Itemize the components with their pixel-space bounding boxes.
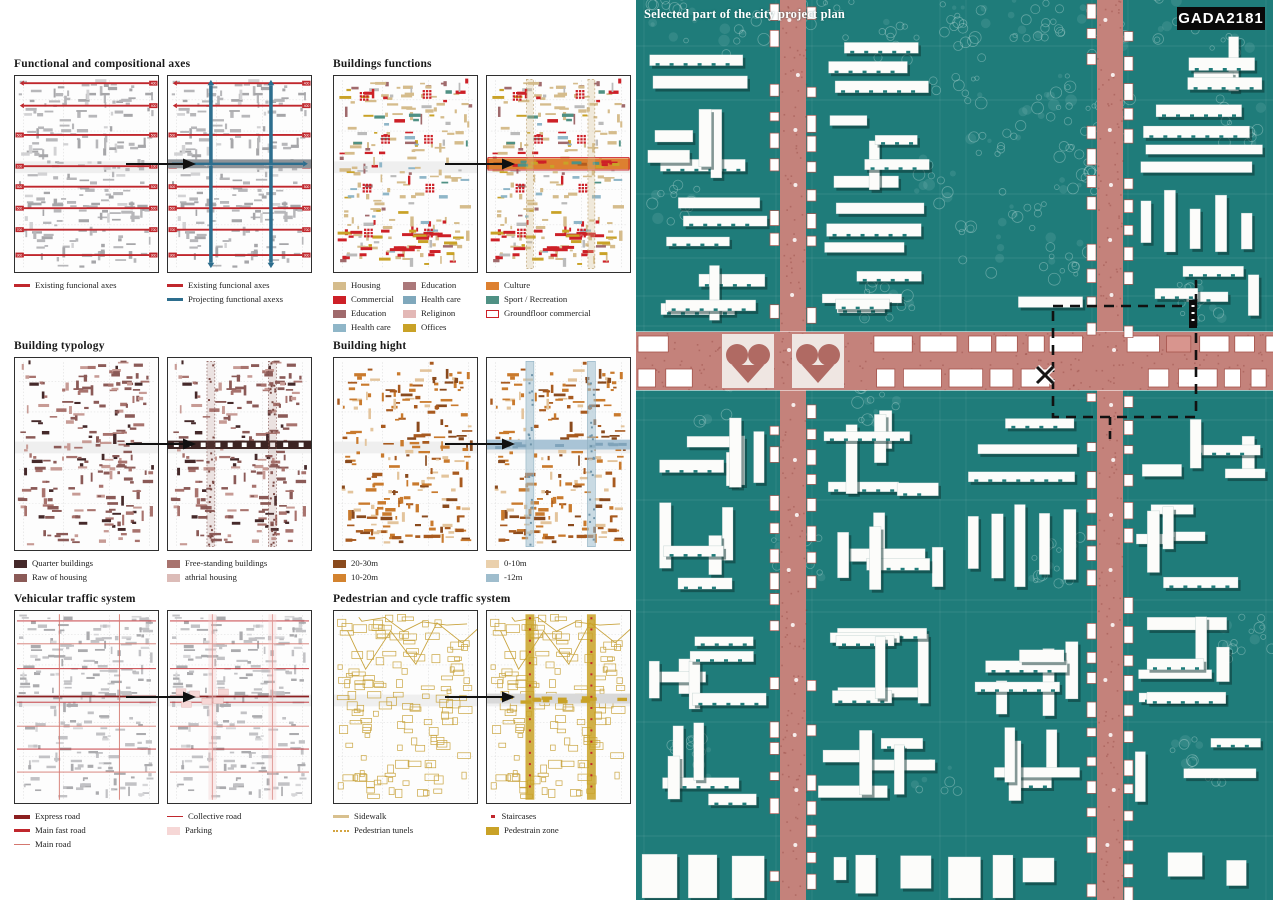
- minimap-functional-axes-proposed: 4004005005001001005005005005007007009009…: [167, 75, 312, 273]
- legend-column: CultureSport / RecreationGroundfloor com…: [486, 281, 591, 323]
- legend-swatch-rect: [333, 296, 346, 304]
- legend-label: Existing funcional axes: [188, 281, 270, 290]
- minimap-building-functions-existing: [333, 75, 478, 273]
- legend-swatch-rect: [333, 560, 346, 568]
- legend-item: Sidewalk: [333, 812, 413, 821]
- legend-swatch-rect: [167, 827, 180, 835]
- legend-swatch-rect: [403, 324, 416, 332]
- legend-item: -12m: [486, 573, 527, 582]
- legend-item: Sport / Recreation: [486, 295, 591, 304]
- legend-swatch-rect: [486, 574, 499, 582]
- section-building-functions: Buildings functionsHousingCommercialEduc…: [333, 58, 633, 341]
- minimap-building-functions-proposed: [486, 75, 631, 273]
- axis-distance-tag: 400: [304, 104, 310, 108]
- legend-swatch-rect: [167, 560, 180, 568]
- legend-swatch-line: [14, 829, 30, 832]
- legend-item: Parking: [167, 826, 241, 835]
- legend-item: Offices: [403, 323, 461, 332]
- project-code-badge: GADA2181: [1177, 7, 1265, 30]
- legend-item: Commercial: [333, 295, 394, 304]
- axis-distance-tag: 500: [304, 185, 310, 189]
- legend-swatch-rect: [14, 574, 27, 582]
- legend-label: Free-standing buildings: [185, 559, 267, 568]
- legend-column: Existing funcional axesProjecting functi…: [167, 281, 283, 309]
- legend-label: -12m: [504, 573, 522, 582]
- legend-swatch-dot: [491, 815, 495, 819]
- legend-label: Religinon: [421, 309, 455, 318]
- legend-column: Collective roadParking: [167, 812, 241, 840]
- legend-label: Projecting functional axexs: [188, 295, 283, 304]
- legend-column: 0-10m-12m: [486, 559, 527, 587]
- section-title: Pedestrian and cycle traffic system: [333, 593, 633, 605]
- axis-distance-tag: 500: [170, 133, 176, 137]
- axis-distance-tag: 500: [151, 207, 157, 211]
- section-building-typology: Building typologyQuarter buildingsRaw of…: [14, 340, 314, 619]
- section-title: Buildings functions: [333, 58, 633, 70]
- legend-item: Health care: [403, 295, 461, 304]
- legend-label: Main road: [35, 840, 71, 849]
- minimap-pedestrian-cycle-existing: [333, 610, 478, 804]
- legend-swatch-rect: [403, 296, 416, 304]
- axis-distance-tag: 700: [304, 228, 310, 232]
- legend-swatch-rect: [333, 324, 346, 332]
- section-functional-axes: Functional and compositional axes4004005…: [14, 58, 314, 341]
- legend-swatch-rect: [486, 560, 499, 568]
- legend-label: Collective road: [188, 812, 241, 821]
- legend-item: Culture: [486, 281, 591, 290]
- section-title: Building typology: [14, 340, 314, 352]
- legend-swatch-rect: [14, 560, 27, 568]
- legend-swatch-rect: [403, 310, 416, 318]
- legend-label: Housing: [351, 281, 380, 290]
- legend-item: Free-standing buildings: [167, 559, 267, 568]
- legend-item: 20-30m: [333, 559, 378, 568]
- legend-swatch-rect: [333, 282, 346, 290]
- axis-distance-tag: 100: [17, 165, 23, 169]
- legend-label: Quarter buildings: [32, 559, 93, 568]
- axis-distance-tag: 500: [304, 207, 310, 211]
- legend-swatch-rect: [403, 282, 416, 290]
- legend-item: athrial housing: [167, 573, 267, 582]
- analysis-diagrams-panel: Functional and compositional axes4004005…: [0, 0, 636, 900]
- legend-column: StaircasesPedestrain zone: [486, 812, 559, 840]
- map-canvas: [636, 0, 1273, 900]
- legend-label: Culture: [504, 281, 530, 290]
- legend-column: EducationHealth careReliginonOffices: [403, 281, 461, 337]
- axis-distance-tag: 400: [151, 104, 157, 108]
- legend-item: Groundfloor commercial: [486, 309, 591, 318]
- legend-label: Main fast road: [35, 826, 86, 835]
- legend-item: Existing funcional axes: [167, 281, 283, 290]
- legend-label: Existing funcional axes: [35, 281, 117, 290]
- minimap-building-typology-proposed: [167, 357, 312, 551]
- legend-pedestrian-cycle: SidewalkPedestrian tunelsStaircasesPedes…: [333, 812, 633, 872]
- axis-distance-tag: 500: [151, 133, 157, 137]
- axis-distance-tag: 500: [17, 185, 23, 189]
- legend-swatch-line: [167, 284, 183, 287]
- city-project-map: Selected part of the city project plan G…: [636, 0, 1273, 900]
- legend-item: 0-10m: [486, 559, 527, 568]
- legend-item: Existing funcional axes: [14, 281, 117, 290]
- legend-swatch-line: [167, 298, 183, 301]
- axis-distance-tag: 100: [151, 165, 157, 169]
- legend-swatch-rect: [333, 310, 346, 318]
- section-pedestrian-cycle: Pedestrian and cycle traffic systemSidew…: [333, 593, 633, 872]
- legend-label: Staircases: [502, 812, 537, 821]
- axis-distance-tag: 700: [17, 228, 23, 232]
- legend-item: Main fast road: [14, 826, 86, 835]
- minimap-vehicular-traffic-proposed: [167, 610, 312, 804]
- legend-item: Pedestrain zone: [486, 826, 559, 835]
- legend-swatch-rect: [167, 574, 180, 582]
- legend-label: Education: [351, 309, 386, 318]
- legend-item: Collective road: [167, 812, 241, 821]
- minimap-pedestrian-cycle-proposed: [486, 610, 631, 804]
- section-title: Vehicular traffic system: [14, 593, 314, 605]
- legend-label: 0-10m: [504, 559, 527, 568]
- legend-swatch-line: [333, 815, 349, 818]
- legend-label: Raw of housing: [32, 573, 87, 582]
- axis-distance-tag: 500: [17, 133, 23, 137]
- legend-label: Sport / Recreation: [504, 295, 567, 304]
- legend-label: Health care: [351, 323, 391, 332]
- legend-label: Offices: [421, 323, 446, 332]
- legend-item: Staircases: [486, 812, 559, 821]
- legend-building-functions: HousingCommercialEducationHealth careEdu…: [333, 281, 633, 341]
- legend-swatch-line-thin: [14, 844, 30, 846]
- legend-functional-axes: Existing funcional axesExisting funciona…: [14, 281, 314, 341]
- legend-item: Quarter buildings: [14, 559, 93, 568]
- legend-swatch-outline: [486, 310, 499, 318]
- minimap-building-hight-proposed: [486, 357, 631, 551]
- axis-distance-tag: 500: [170, 207, 176, 211]
- legend-label: Pedestrain zone: [504, 826, 559, 835]
- legend-column: SidewalkPedestrian tunels: [333, 812, 413, 840]
- axis-distance-tag: 700: [170, 228, 176, 232]
- legend-item: Religinon: [403, 309, 461, 318]
- legend-column: 20-30m10-20m: [333, 559, 378, 587]
- legend-item: Projecting functional axexs: [167, 295, 283, 304]
- legend-swatch-line-thick: [14, 815, 30, 819]
- minimap-building-typology-existing: [14, 357, 159, 551]
- legend-item: Health care: [333, 323, 394, 332]
- section-title: Building hight: [333, 340, 633, 352]
- legend-label: Commercial: [351, 295, 394, 304]
- axis-distance-tag: 500: [170, 185, 176, 189]
- legend-label: Parking: [185, 826, 212, 835]
- legend-label: 10-20m: [351, 573, 378, 582]
- axis-distance-tag: 900: [151, 253, 157, 257]
- axis-distance-tag: 500: [304, 133, 310, 137]
- legend-item: Express road: [14, 812, 86, 821]
- legend-item: Main road: [14, 840, 86, 849]
- legend-label: 20-30m: [351, 559, 378, 568]
- legend-column: Quarter buildingsRaw of housing: [14, 559, 93, 587]
- minimap-building-hight-existing: [333, 357, 478, 551]
- axis-distance-tag: 900: [17, 253, 23, 257]
- section-vehicular-traffic: Vehicular traffic systemExpress roadMain…: [14, 593, 314, 872]
- legend-item: Education: [403, 281, 461, 290]
- axis-distance-tag: 500: [17, 207, 23, 211]
- section-title: Functional and compositional axes: [14, 58, 314, 70]
- legend-item: Education: [333, 309, 394, 318]
- legend-label: Education: [421, 281, 456, 290]
- axis-distance-tag: 900: [170, 253, 176, 257]
- legend-label: athrial housing: [185, 573, 237, 582]
- legend-swatch-line: [14, 284, 30, 287]
- minimap-functional-axes-existing: 4004005005001001005005005005007007009009…: [14, 75, 159, 273]
- legend-column: HousingCommercialEducationHealth care: [333, 281, 394, 337]
- legend-item: Pedestrian tunels: [333, 826, 413, 835]
- legend-swatch-rect: [486, 827, 499, 835]
- legend-item: Raw of housing: [14, 573, 93, 582]
- minimap-vehicular-traffic-existing: [14, 610, 159, 804]
- legend-label: Groundfloor commercial: [504, 309, 591, 318]
- axis-distance-tag: 400: [151, 82, 157, 86]
- legend-label: Health care: [421, 295, 461, 304]
- legend-column: Existing funcional axes: [14, 281, 117, 295]
- axis-distance-tag: 700: [151, 228, 157, 232]
- legend-label: Pedestrian tunels: [354, 826, 413, 835]
- axis-distance-tag: 500: [151, 185, 157, 189]
- axis-distance-tag: 400: [304, 82, 310, 86]
- legend-label: Sidewalk: [354, 812, 386, 821]
- legend-vehicular-traffic: Express roadMain fast roadMain roadColle…: [14, 812, 314, 872]
- legend-swatch-rect: [486, 296, 499, 304]
- section-building-hight: Building hight20-30m10-20m0-10m-12m: [333, 340, 633, 619]
- legend-item: 10-20m: [333, 573, 378, 582]
- legend-swatch-line-dotted: [333, 830, 349, 832]
- legend-column: Express roadMain fast roadMain road: [14, 812, 86, 854]
- map-scale-tag: [1189, 300, 1197, 328]
- legend-column: Free-standing buildingsathrial housing: [167, 559, 267, 587]
- legend-swatch-rect: [486, 282, 499, 290]
- legend-label: Express road: [35, 812, 80, 821]
- legend-swatch-rect: [333, 574, 346, 582]
- legend-item: Housing: [333, 281, 394, 290]
- legend-swatch-line-thin: [167, 816, 183, 818]
- presentation-board: Functional and compositional axes4004005…: [0, 0, 1273, 900]
- map-caption: Selected part of the city project plan: [644, 7, 845, 22]
- axis-distance-tag: 900: [304, 253, 310, 257]
